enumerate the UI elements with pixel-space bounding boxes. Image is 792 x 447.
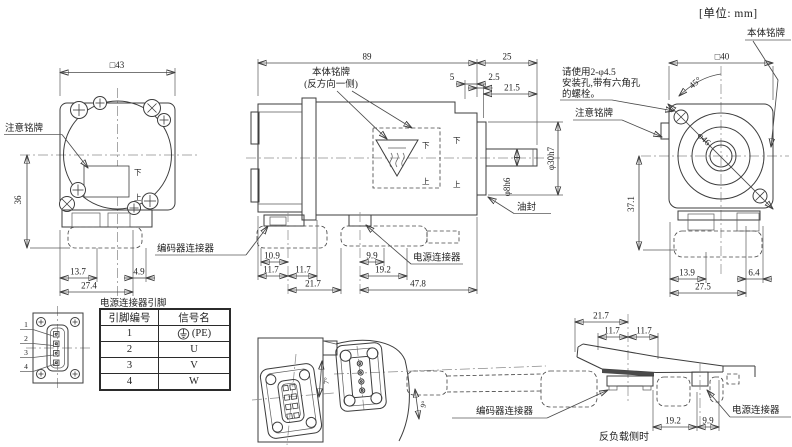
dim-label: 7° — [322, 377, 332, 385]
mounting-flange — [302, 98, 316, 220]
shaft-pilot-boss — [477, 122, 486, 195]
dim-shaft: φ30h7 φ8h6 — [488, 122, 563, 196]
motor-body-side — [316, 102, 477, 215]
dim-label: 47.8 — [410, 279, 426, 289]
dim-label: 11.7 — [636, 326, 652, 336]
dim-label: 45° — [687, 75, 703, 91]
dim-label: 27.4 — [81, 281, 97, 291]
dim-label: 2.5 — [488, 72, 500, 82]
dim-5-25-215: 5 2.5 21.5 — [450, 72, 537, 118]
orientation-down: 下 — [422, 141, 430, 150]
shaft — [486, 149, 537, 166]
nameplate-label: (反方向一侧) — [304, 78, 358, 90]
encoder-connector-callout-rearside: 编码器连接器 — [452, 390, 608, 418]
front-bottom-dims: 13.7 4.9 27.4 — [60, 230, 155, 296]
dim-label: 27.5 — [695, 282, 711, 292]
dim-label: 11.7 — [295, 265, 311, 275]
rear-connector-housing — [674, 211, 762, 257]
caution-nameplate-callout: 注意铭牌 — [4, 122, 88, 168]
encoder-connector-callout: 编码器连接器 — [155, 226, 268, 255]
dim-label: 25 — [503, 52, 513, 62]
dim-label: 11.7 — [263, 265, 279, 275]
power-connector-label: 电源连接器 — [732, 404, 780, 416]
dim-label: 89 — [363, 52, 373, 62]
caution-plate-tab — [661, 123, 669, 139]
dim-angle-7: 7° — [319, 361, 331, 397]
dim-label: 6.4 — [748, 268, 760, 278]
dim-angle-9: 9° — [415, 389, 429, 419]
drawing-canvas: □43 下 上 注意铭牌 36 13.7 — [0, 0, 792, 447]
orientation-up: 上 — [453, 180, 461, 189]
pin-number-label: 1 — [24, 320, 28, 329]
connector-pins — [54, 332, 60, 366]
nameplate-label: 本体铭牌 — [747, 27, 786, 39]
dim-label: φ30h7 — [546, 146, 556, 170]
dim-label: 19.2 — [375, 265, 391, 275]
note-line: 的螺栓。 — [562, 88, 600, 100]
view-caption: 反负载侧时 — [599, 430, 649, 443]
dim-label: □43 — [110, 60, 125, 70]
power-connector-pin-diagram: 1 2 3 4 — [20, 306, 90, 390]
rearside-top-dims: 21.7 11.7 11.7 — [575, 311, 658, 360]
pin-number-label: 3 — [24, 348, 28, 357]
bottom-view: 7° 9° — [252, 338, 546, 445]
side-view: 89 25 5 2.5 21.5 下 上 下 上 本体铭牌 (反方向一侧 — [155, 52, 563, 297]
caution-nameplate-callout-rear: 注意铭牌 — [573, 107, 662, 137]
front-connector-housing — [62, 210, 152, 248]
orientation-up: 上 — [134, 193, 142, 202]
power-connector-label: 电源连接器 — [413, 252, 461, 264]
dim-label: 37.1 — [626, 196, 636, 212]
orientation-up: 上 — [422, 177, 430, 186]
caution-nameplate — [84, 166, 129, 197]
pin-number-label: 4 — [24, 362, 28, 371]
front-view: □43 下 上 注意铭牌 36 13.7 — [4, 60, 200, 298]
dim-label: 21.7 — [593, 311, 609, 321]
note-line: 请使用2-φ4.5 — [562, 66, 616, 78]
encoder-connector-stub — [607, 376, 653, 386]
rear-side-view: 21.7 11.7 11.7 19.2 9.9 编码器连接器 — [452, 311, 791, 444]
body-nameplate-callout-rear: 本体铭牌 — [745, 27, 791, 147]
oil-seal-label: 油封 — [517, 201, 537, 213]
dim-label: 5 — [450, 72, 455, 82]
dim-label: 9° — [418, 400, 428, 409]
dim-label: 10.9 — [264, 251, 280, 261]
dim-label: 11.7 — [604, 326, 620, 336]
dim-label: 19.2 — [665, 416, 681, 426]
encoder-connector-label: 编码器连接器 — [157, 243, 215, 255]
dim-label: 21.7 — [305, 279, 321, 289]
rear-view: □40 45° φ46 本体铭牌 注意铭牌 请使用2-φ4.5 安装孔,带有六角… — [560, 27, 791, 297]
mounting-bolt-note: 请使用2-φ4.5 安装孔,带有六角孔 的螺栓。 — [560, 66, 674, 111]
oil-seal-callout: 油封 — [488, 197, 551, 214]
pin-number-label: 2 — [24, 334, 28, 343]
dim-label: 13.9 — [679, 268, 695, 278]
encoder-connector-face — [259, 363, 322, 440]
servo-motor-dimension-drawing: [单位: mm] 电源连接器引脚 引脚编号 信号名 1 (PE) 2 U 3 V… — [0, 0, 792, 447]
encoder-connector-label: 编码器连接器 — [476, 405, 534, 417]
orientation-down: 下 — [134, 168, 142, 177]
dim-label: □40 — [715, 52, 730, 62]
dim-label: 13.7 — [70, 267, 86, 277]
power-connector-face — [335, 342, 387, 412]
dim-label: 9.9 — [366, 251, 378, 261]
side-bottom-connectors — [257, 215, 459, 248]
dim-label: 36 — [13, 195, 23, 205]
caution-label: 注意铭牌 — [5, 122, 44, 134]
dim-label: φ8h6 — [502, 177, 512, 196]
dim-label: 21.5 — [504, 83, 520, 93]
dim-45deg: 45° — [679, 74, 721, 96]
note-line: 安装孔,带有六角孔 — [562, 77, 641, 89]
nameplate-label: 本体铭牌 — [312, 66, 351, 78]
dim-89-25: 89 25 — [258, 52, 537, 146]
dim-label: 4.9 — [133, 267, 145, 277]
rearside-body — [541, 344, 755, 428]
caution-label: 注意铭牌 — [575, 107, 614, 119]
orientation-down: 下 — [453, 136, 461, 145]
dim-label: 9.9 — [702, 416, 714, 426]
pin-number-callouts: 1 2 3 4 — [20, 320, 55, 372]
power-connector-callout-rearside: 电源连接器 — [707, 390, 791, 417]
